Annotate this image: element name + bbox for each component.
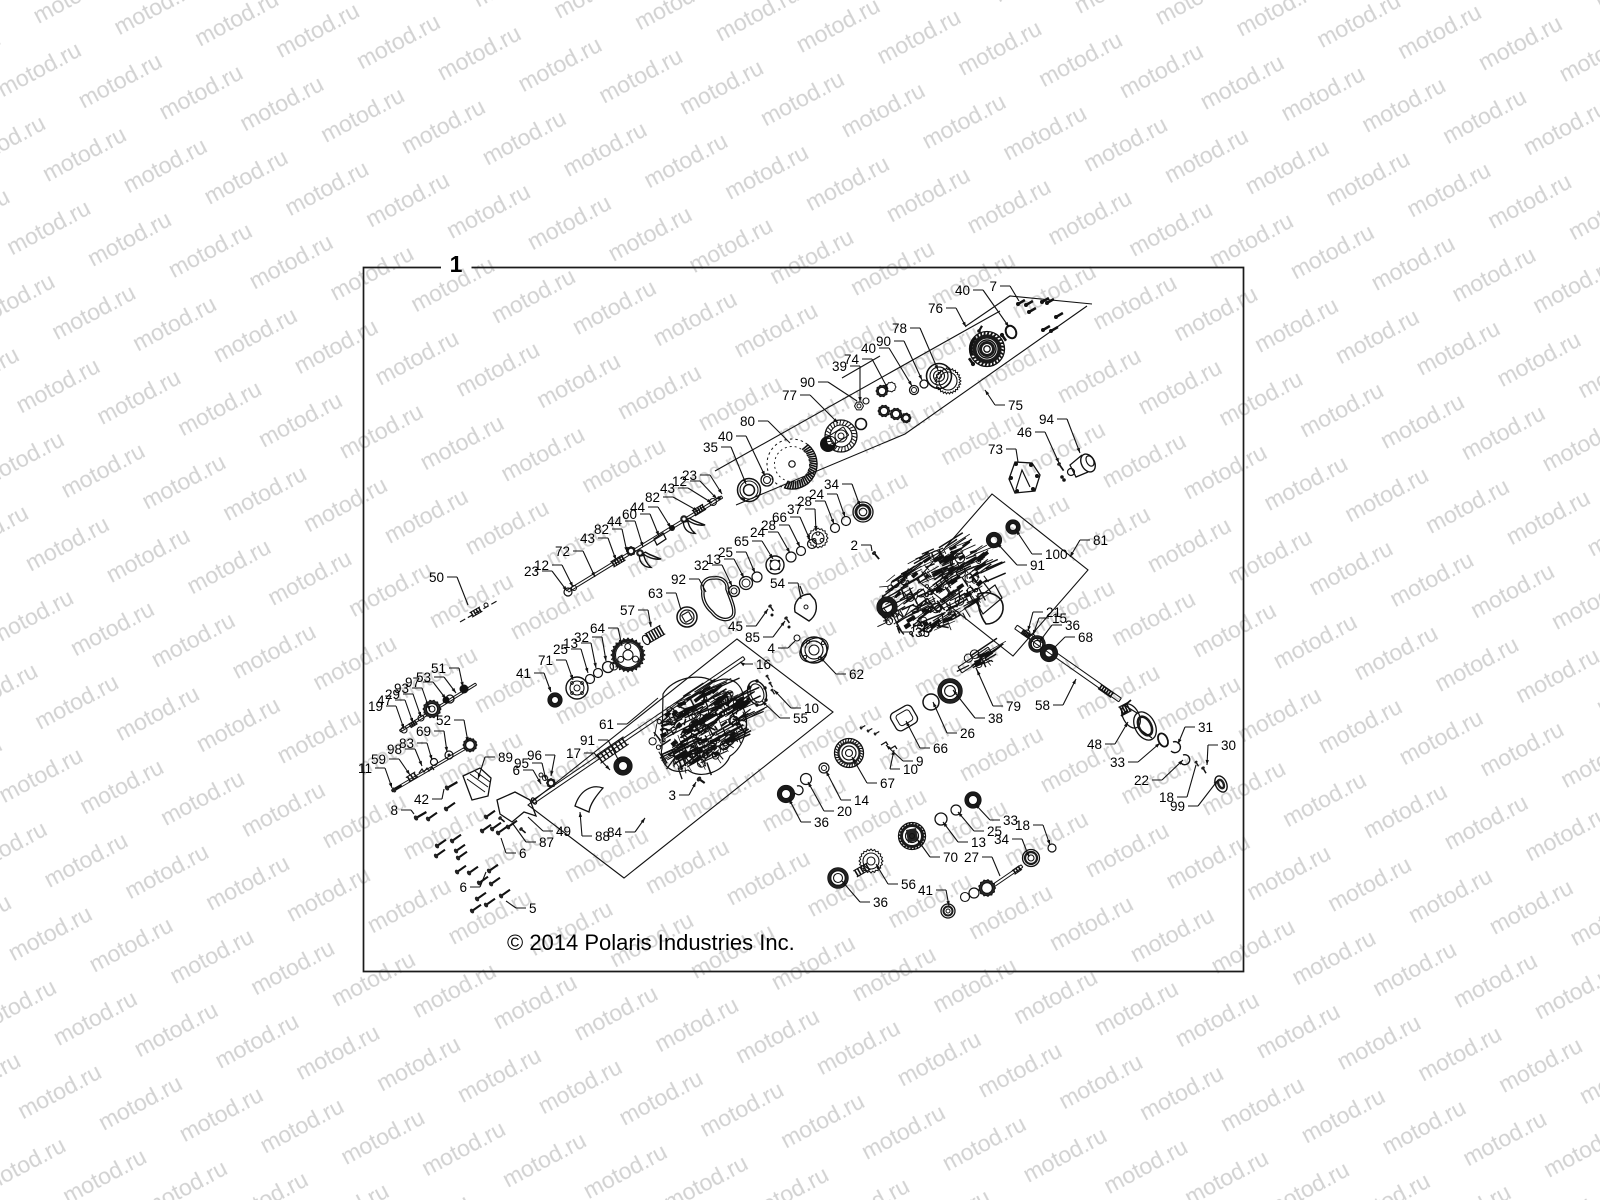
svg-text:83: 83 [399, 736, 414, 751]
svg-text:79: 79 [1006, 699, 1021, 714]
svg-text:36: 36 [873, 895, 888, 910]
svg-text:30: 30 [1221, 738, 1236, 753]
svg-text:2: 2 [850, 538, 858, 553]
svg-text:67: 67 [880, 776, 895, 791]
svg-text:50: 50 [429, 570, 444, 585]
svg-text:14: 14 [854, 793, 870, 808]
svg-text:35: 35 [915, 625, 930, 640]
svg-text:61: 61 [599, 717, 614, 732]
svg-text:38: 38 [988, 711, 1003, 726]
svg-text:71: 71 [538, 653, 553, 668]
svg-text:77: 77 [782, 388, 797, 403]
svg-text:52: 52 [436, 713, 451, 728]
svg-text:6: 6 [459, 880, 467, 895]
svg-text:82: 82 [594, 522, 609, 537]
svg-text:7: 7 [989, 279, 997, 294]
svg-text:48: 48 [1087, 737, 1102, 752]
svg-text:72: 72 [555, 544, 570, 559]
svg-text:17: 17 [566, 746, 581, 761]
svg-text:100: 100 [1045, 547, 1068, 562]
svg-text:40: 40 [861, 341, 876, 356]
svg-text:54: 54 [770, 576, 786, 591]
svg-text:6: 6 [519, 846, 527, 861]
svg-text:32: 32 [574, 630, 589, 645]
svg-text:26: 26 [960, 726, 975, 741]
svg-text:58: 58 [1035, 698, 1050, 713]
svg-text:45: 45 [728, 619, 743, 634]
svg-text:40: 40 [718, 429, 733, 444]
svg-text:99: 99 [1170, 799, 1185, 814]
svg-text:34: 34 [994, 832, 1010, 847]
svg-text:78: 78 [892, 321, 907, 336]
svg-text:90: 90 [800, 375, 815, 390]
svg-text:40: 40 [955, 283, 970, 298]
svg-text:76: 76 [928, 301, 943, 316]
svg-text:64: 64 [590, 621, 606, 636]
svg-text:27: 27 [964, 850, 979, 865]
svg-text:51: 51 [431, 661, 446, 676]
svg-text:63: 63 [648, 586, 663, 601]
svg-text:84: 84 [607, 825, 623, 840]
svg-text:24: 24 [750, 525, 766, 540]
svg-text:55: 55 [793, 711, 808, 726]
svg-text:57: 57 [620, 603, 635, 618]
svg-text:6: 6 [512, 763, 520, 778]
svg-text:20: 20 [837, 804, 852, 819]
svg-text:33: 33 [1110, 755, 1125, 770]
svg-text:90: 90 [876, 334, 891, 349]
svg-text:5: 5 [529, 901, 537, 916]
svg-text:49: 49 [556, 824, 571, 839]
svg-text:42: 42 [414, 792, 429, 807]
svg-text:75: 75 [1008, 398, 1023, 413]
svg-text:81: 81 [1093, 533, 1108, 548]
svg-text:92: 92 [671, 572, 686, 587]
svg-text:65: 65 [734, 534, 749, 549]
svg-text:87: 87 [539, 835, 554, 850]
svg-text:11: 11 [358, 761, 372, 776]
svg-text:68: 68 [1078, 630, 1093, 645]
svg-text:59: 59 [371, 752, 386, 767]
svg-text:73: 73 [988, 442, 1003, 457]
svg-text:60: 60 [622, 507, 637, 522]
svg-text:41: 41 [918, 883, 933, 898]
svg-text:35: 35 [703, 440, 718, 455]
svg-text:10: 10 [903, 762, 918, 777]
svg-text:31: 31 [1198, 720, 1213, 735]
svg-text:82: 82 [645, 490, 660, 505]
svg-text:22: 22 [1134, 773, 1149, 788]
svg-text:94: 94 [1039, 412, 1055, 427]
svg-text:37: 37 [787, 502, 802, 517]
svg-text:46: 46 [1017, 425, 1032, 440]
svg-text:66: 66 [933, 741, 948, 756]
svg-text:43: 43 [580, 531, 595, 546]
svg-text:44: 44 [607, 514, 623, 529]
svg-text:34: 34 [824, 477, 840, 492]
svg-text:43: 43 [660, 481, 675, 496]
svg-text:3: 3 [668, 788, 676, 803]
svg-text:23: 23 [524, 564, 539, 579]
svg-text:39: 39 [832, 359, 847, 374]
svg-text:36: 36 [814, 815, 829, 830]
svg-text:80: 80 [740, 414, 755, 429]
svg-text:18: 18 [1015, 818, 1030, 833]
svg-text:4: 4 [767, 641, 775, 656]
svg-text:62: 62 [849, 667, 864, 682]
svg-text:56: 56 [901, 877, 916, 892]
svg-text:91: 91 [1030, 558, 1045, 573]
svg-text:91: 91 [580, 733, 595, 748]
svg-text:13: 13 [971, 835, 986, 850]
svg-text:53: 53 [416, 670, 431, 685]
svg-text:1: 1 [450, 251, 463, 277]
svg-text:70: 70 [943, 850, 958, 865]
svg-text:8: 8 [390, 803, 398, 818]
svg-text:16: 16 [756, 657, 771, 672]
svg-text:89: 89 [498, 750, 513, 765]
svg-text:96: 96 [527, 748, 542, 763]
svg-text:32: 32 [694, 558, 709, 573]
svg-text:69: 69 [416, 724, 431, 739]
svg-text:41: 41 [516, 666, 531, 681]
svg-text:© 2014 Polaris Industries Inc.: © 2014 Polaris Industries Inc. [507, 930, 795, 955]
svg-text:85: 85 [745, 630, 760, 645]
